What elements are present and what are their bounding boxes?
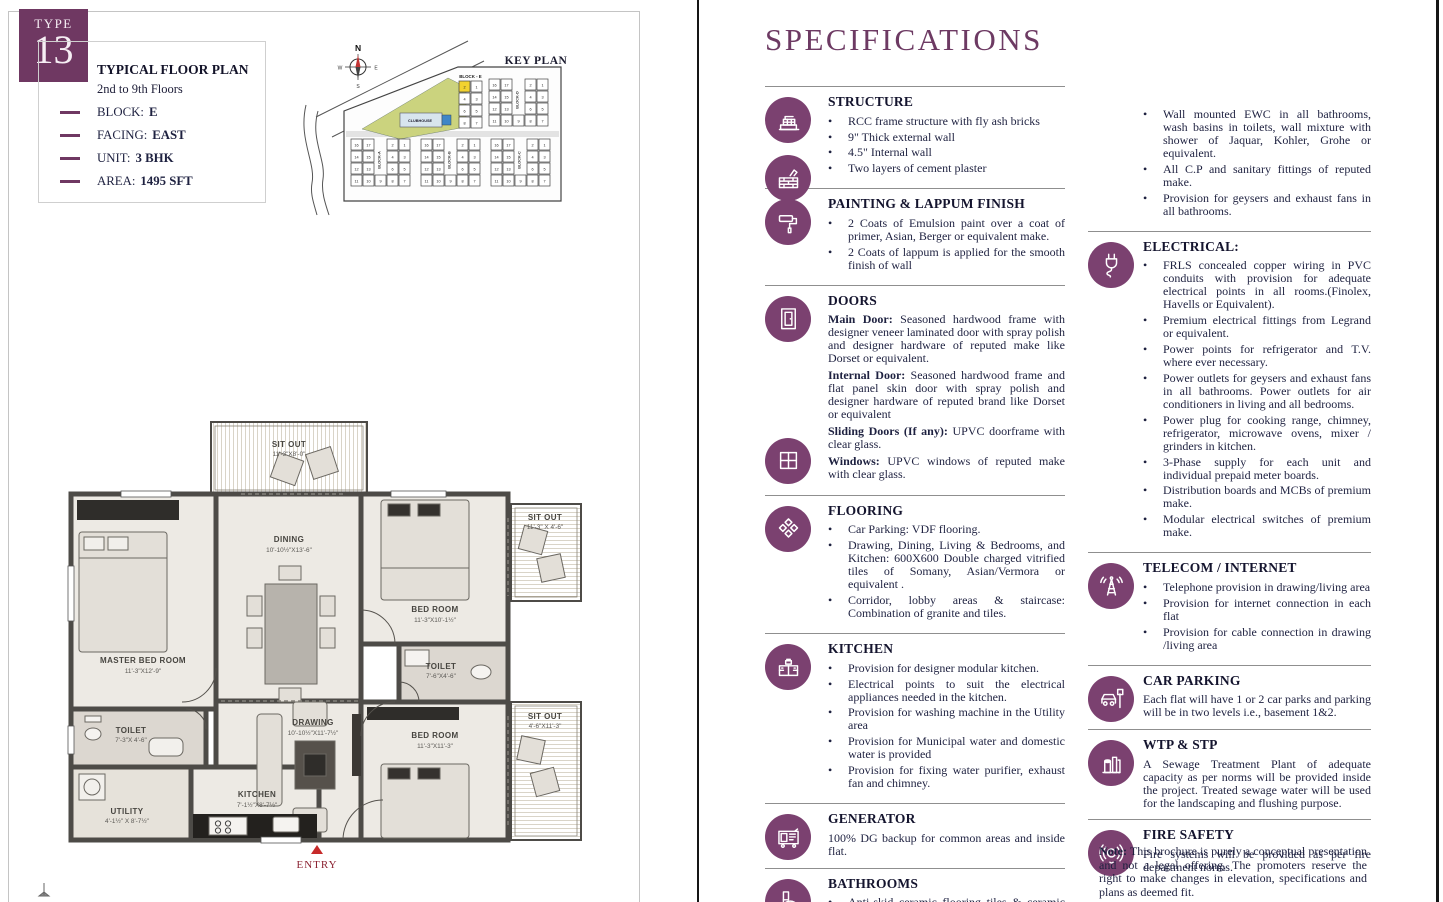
svg-text:BED ROOM: BED ROOM [411,605,458,614]
unit-number: 12 [424,168,428,172]
unit-number: 16 [424,144,428,148]
unit-number: 9 [519,180,521,184]
spec-section-flooring: FLOORING•Car Parking: VDF flooring.•Draw… [765,496,1065,634]
unit-number: 14 [492,96,496,100]
svg-text:MASTER BED ROOM: MASTER BED ROOM [100,656,186,665]
unit-number: 14 [424,156,428,160]
unit-number: 12 [354,168,358,172]
unit-number: 3 [543,156,545,160]
section-heading: BATHROOMS [828,877,1065,892]
section-heading: FLOORING [828,504,1065,519]
bullet-item: •FRLS concealed copper wiring in PVC con… [1143,259,1371,311]
unit-number: 2 [461,144,463,148]
bullet-item: •4.5" Internal wall [828,146,1065,159]
plan-subtitle: 2nd to 9th Floors [97,82,265,97]
clubhouse-label: CLUBHOUSE [408,119,433,123]
unit-number: 10 [436,180,440,184]
unit-number: 8 [461,180,463,184]
bullet-item: •3-Phase supply for each unit and indivi… [1143,456,1371,482]
unit-number: 6 [529,108,531,112]
section-heading: CAR PARKING [1143,674,1371,689]
svg-text:7'-1½"X8'-7½": 7'-1½"X8'-7½" [237,801,277,809]
unit-number: 11 [495,180,499,184]
unit-number: 17 [436,144,440,148]
key-plan-title: KEY PLAN [505,55,568,67]
section-heading: STRUCTURE [828,95,1065,110]
plug-icon [1088,242,1134,288]
spec-section-painting-lappum-finish: PAINTING & LAPPUM FINISH•2 Coats of Emul… [765,189,1065,285]
unit-number: 4 [461,156,463,160]
spec-section-kitchen: KITCHEN•Provision for designer modular k… [765,634,1065,804]
svg-text:7'-6"X4'-6": 7'-6"X4'-6" [426,673,456,680]
door-icon [765,296,811,342]
section-heading: ELECTRICAL: [1143,240,1371,255]
specifications-title: SPECIFICATIONS [765,22,1043,58]
svg-text:11'-3"X10'-1½": 11'-3"X10'-1½" [414,616,456,624]
unit-number: 7 [543,180,545,184]
section-icons [1088,242,1134,288]
unit-number: 4 [391,156,393,160]
page-right-edge [1436,0,1439,902]
bullet-item: •Drawing, Dining, Living & Bedrooms, and… [828,539,1065,591]
unit-number: 4 [463,98,465,102]
block-d-label: BLOCK-D [516,91,520,109]
paragraph: Windows: UPVC windows of reputed make wi… [828,455,1065,481]
bullet-item: •Provision for Municipal water and domes… [828,735,1065,761]
compass-w: W [338,66,343,72]
bullet-item: •Provision for fixing water purifier, ex… [828,764,1065,790]
svg-text:SIT OUT: SIT OUT [272,440,306,449]
compass-n: N [355,43,361,53]
paragraph: Internal Door: Seasoned hardwood frame a… [828,369,1065,421]
bullet-item: •Electrical points to suit the electrica… [828,678,1065,704]
unit-number: 17 [366,144,370,148]
unit-number: 16 [354,144,358,148]
unit-number: 14 [494,156,498,160]
svg-text:11'-3"X8'-0": 11'-3"X8'-0" [273,451,306,458]
bullet-item: •Power plug for cooking range, chimney, … [1143,414,1371,453]
antenna-icon [1088,563,1134,609]
svg-text:TOILET: TOILET [426,662,457,671]
car-icon [1088,676,1134,722]
section-text: Each flat will have 1 or 2 car parks and… [1143,693,1371,719]
unit-number: 12 [494,168,498,172]
spec-section-continued: •Wall mounted EWC in all bathrooms, wash… [1088,100,1371,232]
plan-info-box: TYPICAL FLOOR PLAN 2nd to 9th Floors BLO… [38,41,266,203]
unit-number: 8 [391,180,393,184]
plan-title: TYPICAL FLOOR PLAN [97,62,265,78]
section-heading: TELECOM / INTERNET [1143,561,1371,576]
section-icons [765,506,811,552]
dash-icon [60,157,80,160]
note-label: Note: [1099,844,1127,858]
unit-number: 8 [463,122,465,126]
section-text: 100% DG backup for common areas and insi… [828,832,1065,858]
unit-number: 7 [473,180,475,184]
unit-number: 1 [403,144,405,148]
unit-number: 6 [391,168,393,172]
plan-info-row: BLOCK:E [60,105,265,120]
unit-number: 17 [506,144,510,148]
unit-number: 9 [379,180,381,184]
unit-number: 6 [463,110,465,114]
toilet-icon [765,879,811,902]
unit-number: 16 [494,144,498,148]
floor-plan: SIT OUT 11'-3"X8'-0" DINING 10'-10½"X13'… [61,416,623,878]
unit-number: 8 [529,120,531,124]
unit-number: 3 [475,98,477,102]
unit-number: 2 [531,144,533,148]
unit-number: 2 [391,144,393,148]
bullet-item: •Provision for cable connection in drawi… [1143,626,1371,652]
compass-icon: N W E S [338,43,379,90]
dash-icon [60,180,80,183]
svg-text:KITCHEN: KITCHEN [238,790,276,799]
spec-section-doors: DOORSMain Door: Seasoned hardwood frame … [765,286,1065,496]
floor-plan-page: TYPE 13 TYPICAL FLOOR PLAN 2nd to 9th Fl… [8,11,640,902]
tiles-icon [765,506,811,552]
svg-text:BED ROOM: BED ROOM [411,731,458,740]
svg-text:DRAWING: DRAWING [292,718,333,727]
building-icon [765,97,811,143]
bullet-item: •RCC frame structure with fly ash bricks [828,115,1065,128]
section-heading: PAINTING & LAPPUM FINISH [828,197,1065,212]
section-heading: KITCHEN [828,642,1065,657]
unit-number: 14 [354,156,358,160]
spec-column-left: STRUCTURE•RCC frame structure with fly a… [765,86,1065,902]
unit-number: 17 [504,84,508,88]
section-icons [1088,740,1134,786]
section-icons [765,814,811,860]
unit-number: 15 [366,156,370,160]
spec-section-telecom-internet: TELECOM / INTERNET•Telephone provision i… [1088,553,1371,665]
unit-number: 3 [473,156,475,160]
svg-text:4'-6"X11'-3": 4'-6"X11'-3" [529,723,562,730]
bullet-item: •Car Parking: VDF flooring. [828,523,1065,536]
spec-section-generator: GENERATOR100% DG backup for common areas… [765,804,1065,868]
spec-section-bathrooms: BATHROOMS•Anti-skid ceramic flooring til… [765,869,1065,902]
paragraph: Sliding Doors (If any): UPVC doorframe w… [828,425,1065,451]
unit-number: 2 [463,86,465,90]
generator-icon [765,814,811,860]
bullet-item: •9" Thick external wall [828,131,1065,144]
window-icon [765,438,811,484]
section-heading: WTP & STP [1143,738,1371,753]
unit-number: 8 [531,180,533,184]
bullet-item: •Modular electrical switches of premium … [1143,513,1371,539]
unit-number: 1 [541,84,543,88]
block-e-label: BLOCK - E [459,74,482,79]
svg-text:UTILITY: UTILITY [110,807,143,816]
unit-number: 3 [541,96,543,100]
unit-number: 3 [403,156,405,160]
unit-number: 15 [506,156,510,160]
unit-number: 10 [504,120,508,124]
block-a-label: BLOCK-A [378,151,382,169]
block-b-label: BLOCK-B [448,151,452,169]
unit-number: 4 [531,156,533,160]
svg-text:11'-3"X11'-3": 11'-3"X11'-3" [417,743,453,750]
plan-info-row: UNIT:3 BHK [60,151,265,166]
svg-text:SIT OUT: SIT OUT [528,712,562,721]
bullet-item: •Provision for internet connection in ea… [1143,597,1371,623]
bullet-item: •Provision for designer modular kitchen. [828,662,1065,675]
bullet-item: •Two layers of cement plaster [828,162,1065,175]
unit-number: 7 [403,180,405,184]
unit-number: 13 [506,168,510,172]
corner-logo-partial [36,879,52,901]
pool-block [442,115,451,125]
bullet-item: •Provision for washing machine in the Ut… [828,706,1065,732]
svg-text:TOILET: TOILET [116,726,147,735]
unit-number: 9 [517,120,519,124]
wtp-icon [1088,740,1134,786]
section-icons [765,644,811,690]
dash-icon [60,111,80,114]
unit-number: 10 [506,180,510,184]
unit-number: 1 [543,144,545,148]
section-icons [765,97,811,201]
unit-number: 13 [366,168,370,172]
svg-text:7'-3"X 4'-6": 7'-3"X 4'-6" [115,737,147,744]
unit-number: 2 [529,84,531,88]
compass-e: E [374,66,378,72]
svg-text:DINING: DINING [274,535,304,544]
spec-section-structure: STRUCTURE•RCC frame structure with fly a… [765,87,1065,189]
unit-number: 1 [475,86,477,90]
entry-arrow-icon [311,845,323,854]
bullet-item: •2 Coats of lappum is applied for the sm… [828,246,1065,272]
block-c-label: BLOCK-C [518,151,522,169]
section-heading: GENERATOR [828,812,1065,827]
section-icons [1088,676,1134,722]
unit-number: 5 [403,168,405,172]
section-heading: FIRE SAFETY [1143,828,1371,843]
plan-info-row: FACING:EAST [60,128,265,143]
specifications-page: SPECIFICATIONS STRUCTURE•RCC frame struc… [703,0,1436,902]
unit-number: 6 [461,168,463,172]
unit-number: 13 [504,108,508,112]
bullet-item: •Corridor, lobby areas & staircase: Comb… [828,594,1065,620]
svg-text:11'-3" X 4'-6": 11'-3" X 4'-6" [527,524,563,531]
unit-number: 1 [473,144,475,148]
unit-number: 9 [449,180,451,184]
compass-s: S [356,84,360,90]
svg-text:SIT OUT: SIT OUT [528,513,562,522]
unit-number: 7 [541,120,543,124]
entry-label: ENTRY [296,859,337,871]
unit-number: 10 [366,180,370,184]
bullet-item: •Power points for refrigerator and T.V. … [1143,343,1371,369]
bullet-item: •Premium electrical fittings from Legran… [1143,314,1371,340]
bullet-item: •Telephone provision in drawing/living a… [1143,581,1371,594]
unit-number: 5 [473,168,475,172]
paragraph: Main Door: Seasoned hardwood frame with … [828,313,1065,365]
unit-number: 5 [543,168,545,172]
bullet-item: •Anti-skid ceramic flooring tiles & cera… [828,896,1065,902]
section-text: A Sewage Treatment Plant of adequate cap… [1143,758,1371,810]
bullet-item: •Power outlets for geysers and exhaust f… [1143,372,1371,411]
unit-number: 4 [529,96,531,100]
unit-number: 5 [541,108,543,112]
unit-number: 12 [492,108,496,112]
svg-text:4'-1½" X 8'-7½": 4'-1½" X 8'-7½" [105,817,149,825]
spec-section-car-parking: CAR PARKINGEach flat will have 1 or 2 ca… [1088,666,1371,730]
brochure-spread: TYPE 13 TYPICAL FLOOR PLAN 2nd to 9th Fl… [0,0,1443,902]
section-heading: DOORS [828,294,1065,309]
key-plan: KEY PLAN CLUBHOUSE 214365871617211415431… [296,31,576,221]
unit-number: 7 [475,122,477,126]
plan-info-list: BLOCK:EFACING:EASTUNIT:3 BHKAREA:1495 SF… [60,105,265,189]
unit-number: 6 [531,168,533,172]
section-icons [1088,563,1134,609]
unit-number: 13 [436,168,440,172]
note-text: This brochure is purely a conceptual pre… [1099,844,1367,899]
plan-info-row: AREA:1495 SFT [60,174,265,189]
bullet-item: •All C.P and sanitary fittings of repute… [1143,163,1371,189]
kitchen-icon [765,644,811,690]
spec-column-right: •Wall mounted EWC in all bathrooms, wash… [1088,100,1371,884]
svg-text:10'-10½"X13'-6": 10'-10½"X13'-6" [266,546,312,554]
unit-number: 11 [493,120,497,124]
svg-text:11'-3"X12'-9": 11'-3"X12'-9" [125,668,161,675]
svg-text:10'-10½"X11'-7½": 10'-10½"X11'-7½" [288,729,339,737]
unit-number: 5 [475,110,477,114]
unit-number: 15 [436,156,440,160]
spec-section-wtp-stp: WTP & STPA Sewage Treatment Plant of ade… [1088,730,1371,820]
section-icons [765,879,811,902]
bullet-item: •Distribution boards and MCBs of premium… [1143,484,1371,510]
bullet-item: •Wall mounted EWC in all bathrooms, wash… [1143,108,1371,160]
unit-number: 16 [492,84,496,88]
unit-number: 15 [504,96,508,100]
bullet-item: •Provision for geysers and exhaust fans … [1143,192,1371,218]
spec-section-electrical: ELECTRICAL:•FRLS concealed copper wiring… [1088,232,1371,554]
section-icons [765,296,811,484]
bullet-item: •2 Coats of Emulsion paint over a coat o… [828,217,1065,243]
unit-number: 11 [355,180,359,184]
dash-icon [60,134,80,137]
page-fold-divider [697,0,699,902]
paint-roller-icon [765,199,811,245]
section-icons [765,199,811,245]
unit-number: 11 [425,180,429,184]
disclaimer-note: Note: This brochure is purely a conceptu… [1099,845,1367,900]
